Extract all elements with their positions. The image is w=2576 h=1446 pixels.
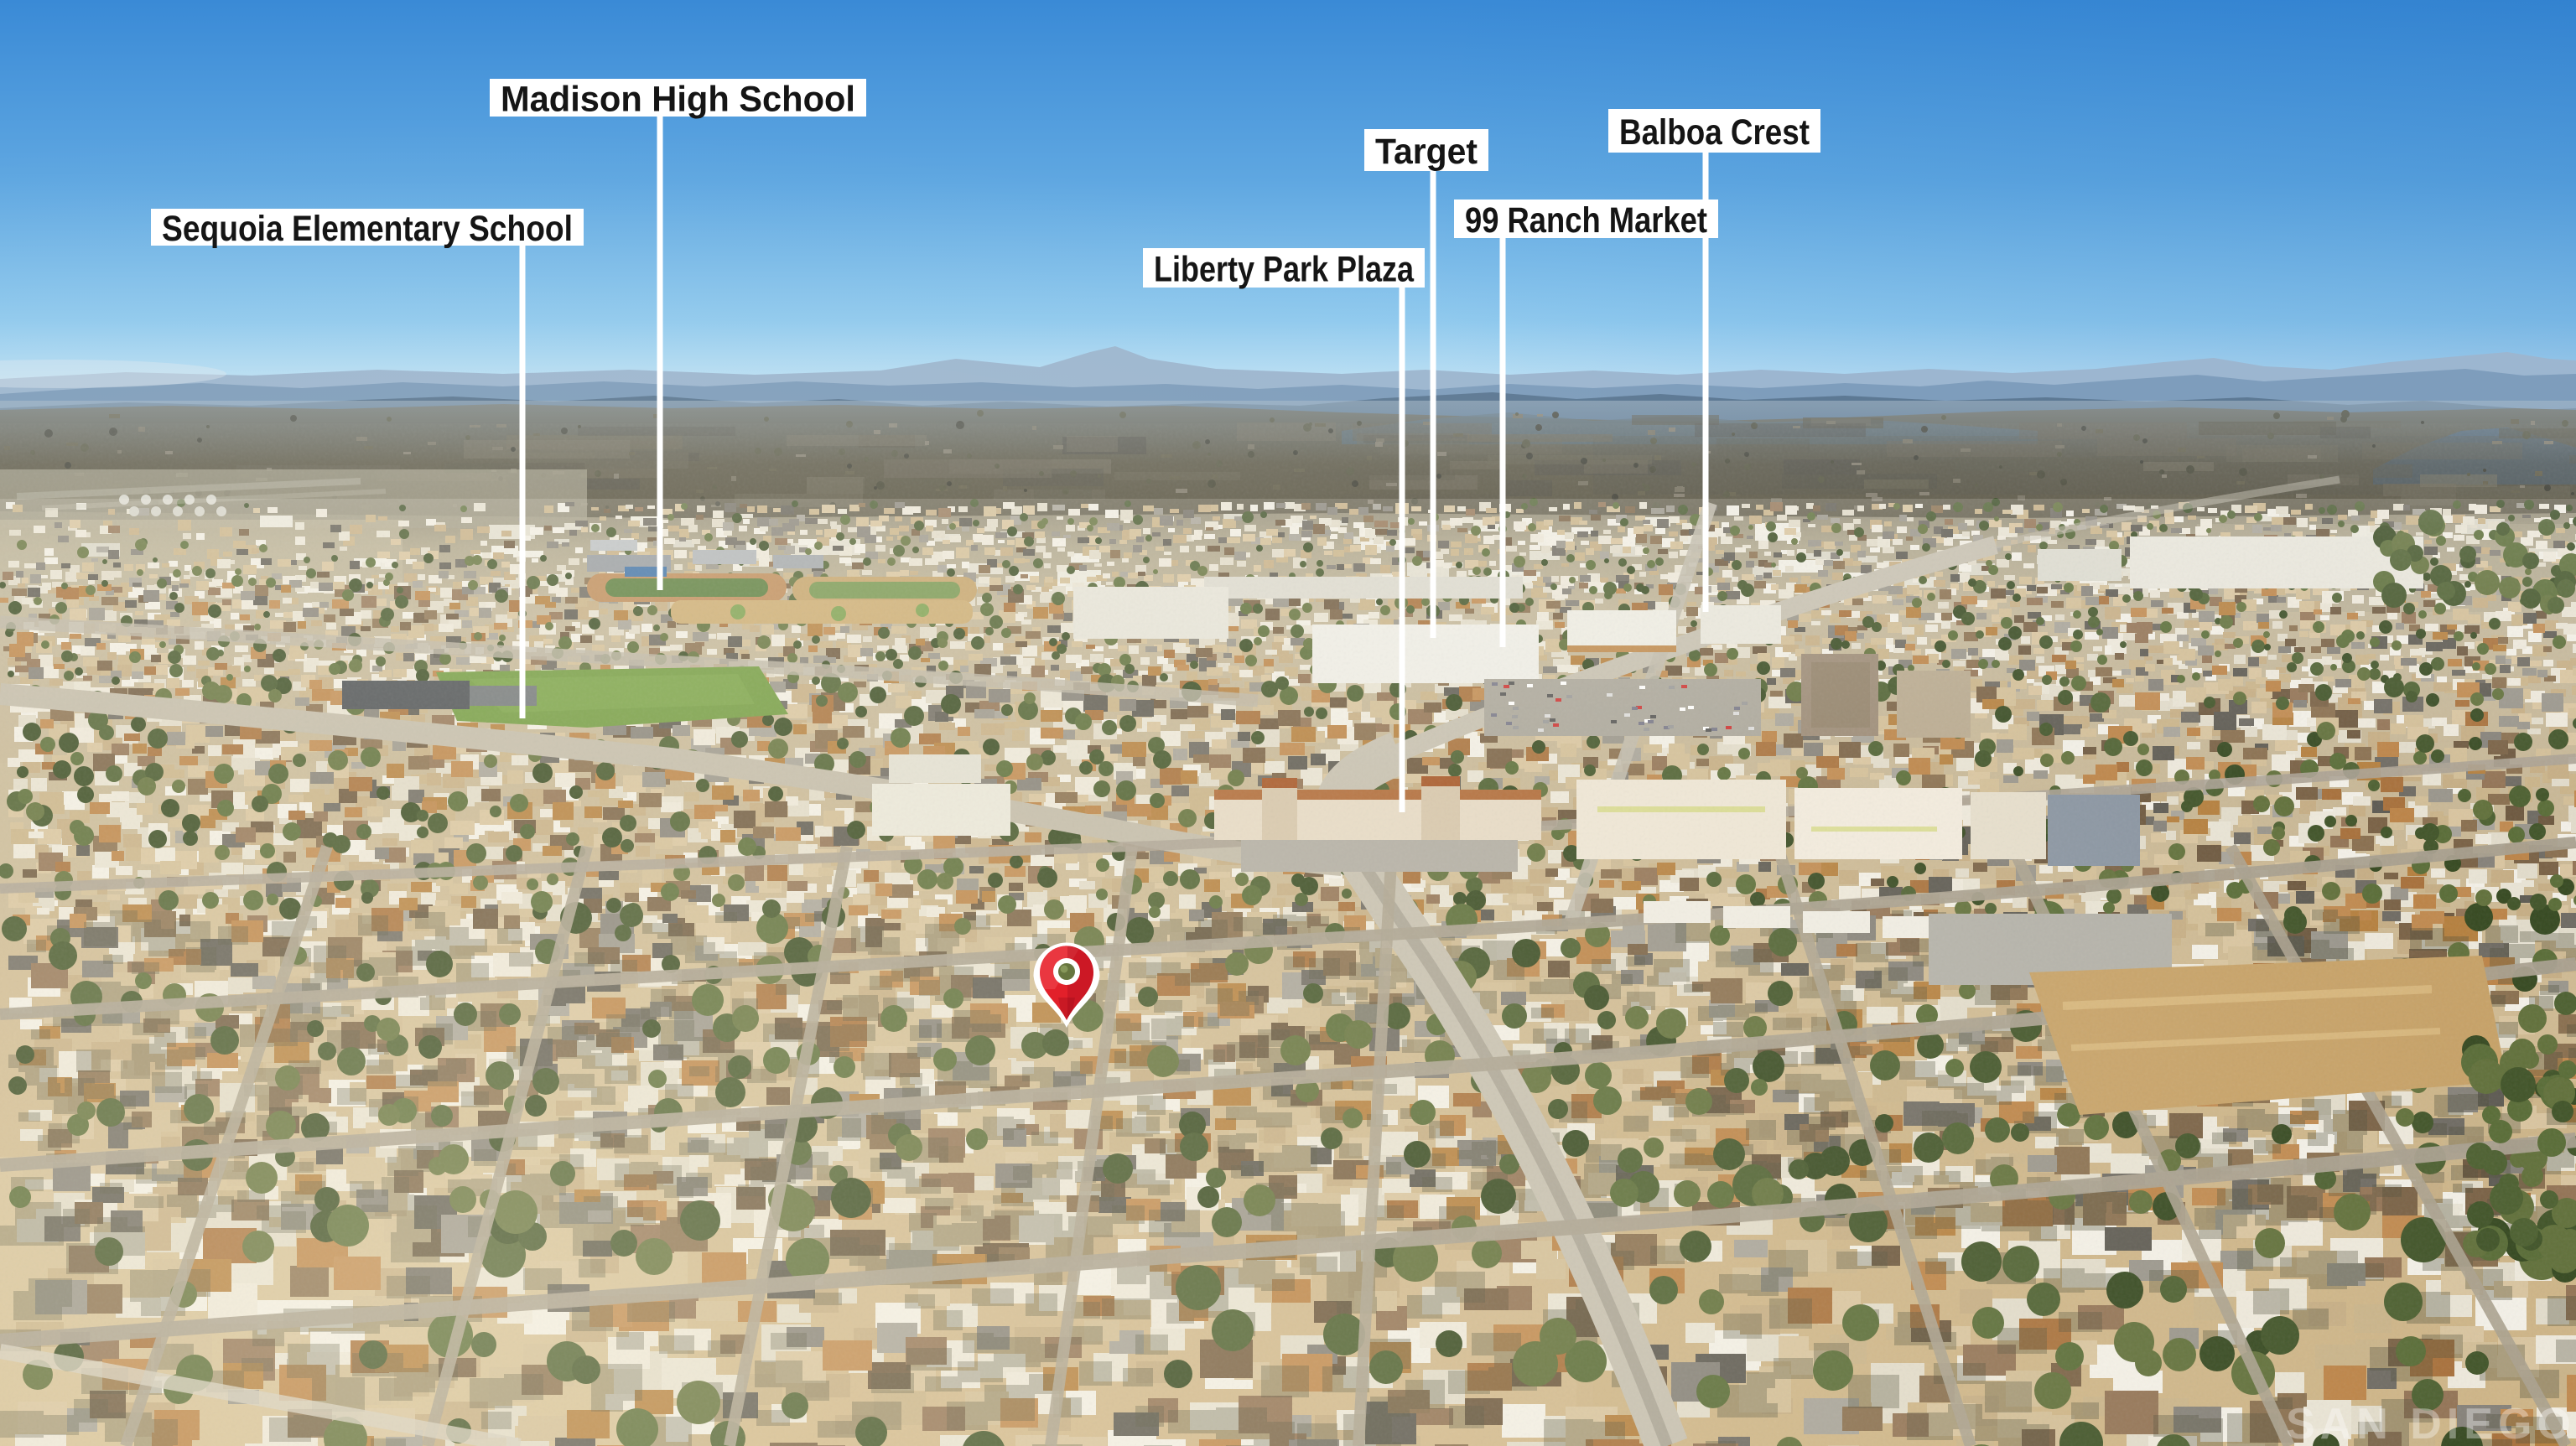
svg-text:Madison High School: Madison High School <box>501 80 855 120</box>
svg-text:Sequoia Elementary School: Sequoia Elementary School <box>162 209 573 249</box>
svg-text:Liberty Park Plaza: Liberty Park Plaza <box>1154 250 1415 290</box>
svg-text:Target: Target <box>1375 132 1478 172</box>
svg-text:99 Ranch Market: 99 Ranch Market <box>1465 200 1707 241</box>
svg-text:SAN DIEGO MLS: SAN DIEGO MLS <box>2286 1400 2576 1446</box>
svg-text:Balboa Crest: Balboa Crest <box>1619 112 1810 153</box>
